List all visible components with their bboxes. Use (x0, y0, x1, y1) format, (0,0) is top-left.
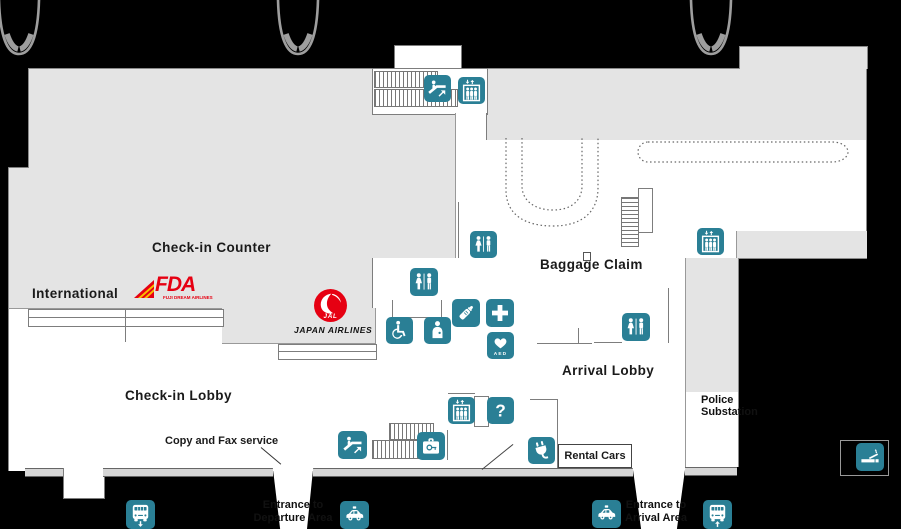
elevator-icon (697, 228, 724, 255)
copy-fax-label: Copy and Fax service (165, 435, 278, 447)
escalator-up-icon (424, 75, 451, 102)
wall-line (537, 343, 592, 344)
wall (25, 468, 63, 477)
wall (685, 467, 737, 476)
baby-bottle-icon (452, 299, 480, 327)
charging-plug-icon (528, 437, 555, 464)
concourse-floor (372, 113, 455, 259)
wall-line (8, 167, 28, 168)
wall-line (668, 288, 669, 343)
check-in-desks (28, 309, 224, 327)
wall-line (486, 113, 487, 140)
airplane-nose-icon (0, 0, 41, 60)
wall-line (392, 300, 393, 318)
area-label-check-in-lobby: Check-in Lobby (125, 388, 232, 403)
elevator-icon (448, 397, 475, 424)
wall-line (594, 342, 622, 343)
arrival-entrance-line2: Arrival Area (586, 512, 726, 525)
wheelchair-toilet-icon (386, 317, 413, 344)
fda-swoosh-icon (133, 278, 155, 300)
departure-entrance-line1: Entrance to (223, 499, 363, 512)
baggage-carousel (634, 138, 860, 166)
departure-entrance-line2: Departure Area (223, 512, 363, 525)
nursing-room-icon (424, 317, 451, 344)
police-line1: Police (701, 395, 758, 407)
counter-divider (125, 310, 126, 326)
wall-line (441, 300, 442, 318)
fda-logo: FDA FUJI DREAM AIRLINES (133, 276, 211, 302)
concourse-floor (28, 68, 373, 169)
police-substation-label: Police Substation (701, 395, 758, 418)
area-label-baggage-claim: Baggage Claim (540, 257, 643, 272)
concourse-floor-bump (739, 46, 868, 69)
smoking-area-icon (856, 443, 884, 471)
arrival-entrance-line1: Entrance to (586, 499, 726, 512)
toilet-icon (410, 268, 438, 296)
aed-label: AED (494, 351, 508, 357)
terminal-floor-map: AED ? (0, 0, 901, 529)
information-icon: ? (487, 397, 514, 424)
counter-divider (279, 351, 376, 352)
baggage-carousel (498, 138, 608, 238)
rental-cars-label: Rental Cars (564, 450, 625, 462)
fda-wordmark: FDA (155, 273, 195, 297)
wall-line (530, 399, 558, 400)
escalator-up-icon (338, 431, 367, 459)
wall-line (578, 328, 579, 344)
police-line2: Substation (701, 407, 758, 419)
airplane-nose-icon (276, 0, 320, 60)
wall (313, 468, 633, 477)
help-mark: ? (495, 401, 506, 421)
door-recess (63, 468, 105, 499)
wall-line (458, 202, 459, 258)
counter-divider (29, 317, 223, 318)
stair-landing (638, 188, 653, 233)
area-label-arrival-lobby: Arrival Lobby (562, 363, 654, 378)
fda-caption: FUJI DREAM AIRLINES (163, 295, 213, 300)
rental-cars-box: Rental Cars (558, 444, 632, 468)
arrival-entrance-label: Entrance to Arrival Area (586, 499, 726, 525)
stairs (621, 197, 639, 247)
airplane-nose-icon (689, 0, 733, 60)
toilet-icon (470, 231, 497, 258)
wall-line (125, 325, 126, 342)
first-aid-icon (486, 299, 514, 327)
baggage-side-floor (736, 231, 867, 259)
wall-line (447, 430, 448, 460)
coin-locker-icon (417, 432, 445, 460)
jal-logo: JAL JAPAN AIRLINES (294, 289, 374, 339)
right-corridor-floor (685, 258, 739, 392)
departure-entrance-label: Entrance to Departure Area (223, 499, 363, 525)
concourse-floor (486, 68, 867, 142)
jal-caption: JAPAN AIRLINES (294, 325, 372, 335)
wall (103, 468, 273, 477)
aed-icon: AED (487, 332, 514, 359)
area-label-international: International (32, 286, 118, 301)
wall-line (448, 393, 475, 394)
toilet-icon (622, 313, 650, 341)
bus-stop-icon (126, 500, 155, 529)
jal-wordmark: JAL (324, 313, 338, 320)
check-in-desks (278, 344, 377, 360)
jal-crane-icon: JAL (314, 289, 347, 322)
area-label-check-in-counter: Check-in Counter (152, 240, 271, 255)
elevator-icon (458, 77, 485, 104)
